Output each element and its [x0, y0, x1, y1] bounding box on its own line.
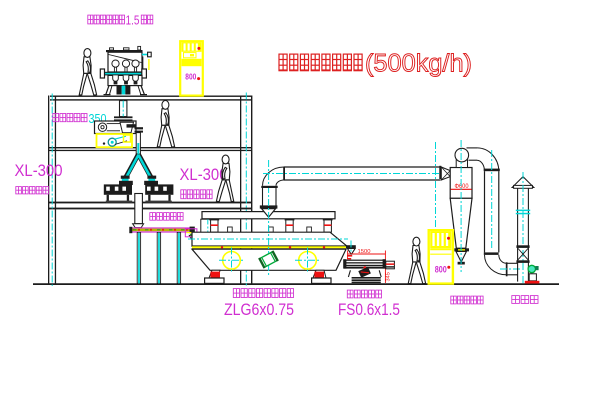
- svg-text:800: 800: [435, 265, 447, 275]
- svg-text:Φ600: Φ600: [455, 183, 470, 190]
- svg-text:345: 345: [386, 272, 392, 281]
- svg-text:XL-300: XL-300: [15, 161, 63, 180]
- svg-text:(500kg/h): (500kg/h): [365, 50, 472, 78]
- svg-text:1.5: 1.5: [126, 13, 140, 28]
- svg-text:1500: 1500: [358, 249, 371, 255]
- svg-text:ZLG6x0.75: ZLG6x0.75: [224, 301, 294, 319]
- svg-text:XL-300: XL-300: [180, 165, 228, 184]
- svg-text:FS0.6x1.5: FS0.6x1.5: [338, 300, 400, 319]
- svg-text:800: 800: [185, 72, 196, 82]
